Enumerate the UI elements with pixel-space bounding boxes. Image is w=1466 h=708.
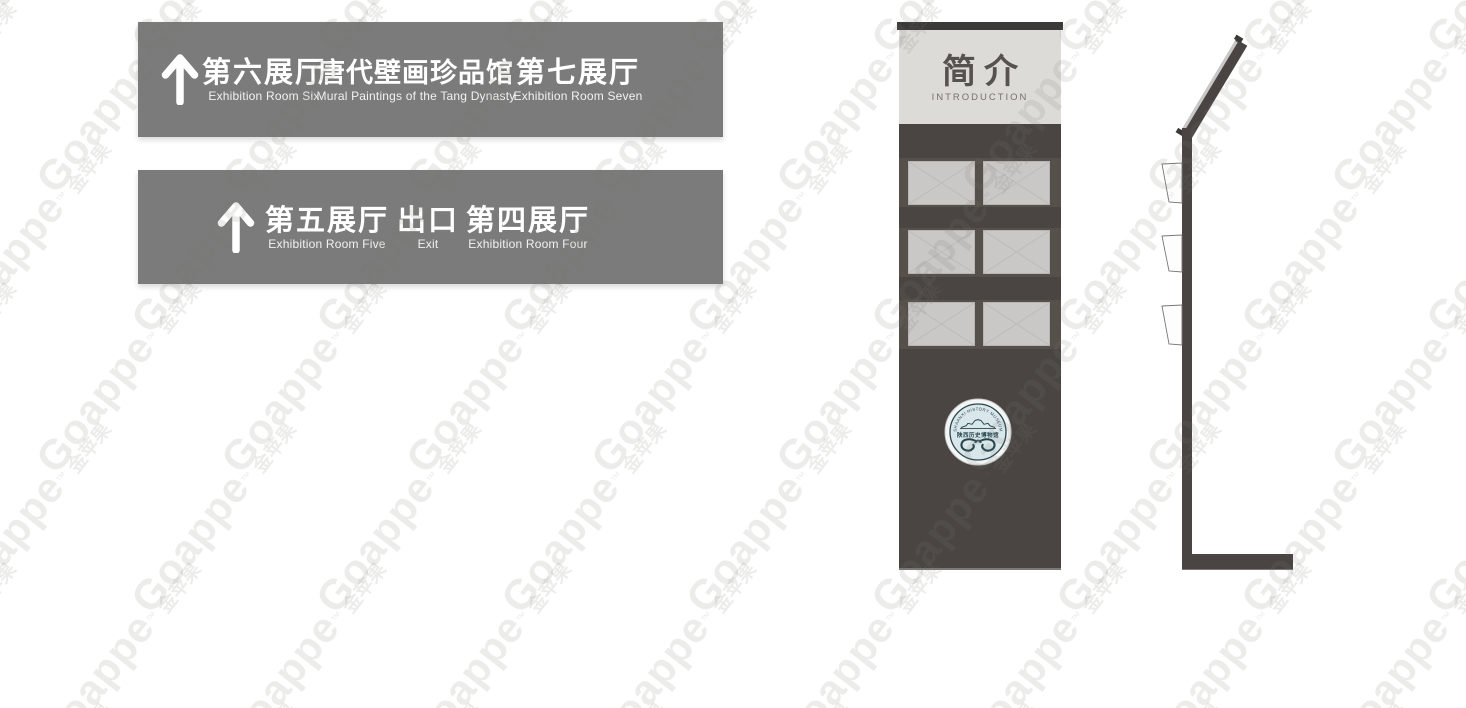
room-four-label-en: Exhibition Room Four [466,238,590,251]
sign-item-room-seven: 第七展厅 Exhibition Room Seven [514,58,643,103]
watermark: Goappe™金苹果 [1417,0,1466,62]
exit-label-cn: 出口 [397,206,459,236]
watermark: Goappe™金苹果 [582,546,765,708]
watermark: Goappe™金苹果 [1047,686,1230,708]
watermark: Goappe™金苹果 [1417,686,1466,708]
up-arrow-icon [160,49,200,105]
room-seven-label-en: Exhibition Room Seven [514,90,643,103]
room-six-label-en: Exhibition Room Six [202,90,326,103]
sign-item-room-five: 第五展厅 Exhibition Room Five [265,206,389,251]
watermark: Goappe™金苹果 [0,0,25,202]
watermark: Goappe™金苹果 [27,266,210,482]
photo-frame [908,161,975,205]
watermark: Goappe™金苹果 [677,686,860,708]
photo-frame [908,230,975,274]
room-four-label-cn: 第四展厅 [466,206,590,236]
side-view-brochure-holders [1158,158,1188,358]
watermark: Goappe™金苹果 [1322,266,1466,482]
totem-body [899,124,1061,570]
sign-panel-bottom: 第五展厅 Exhibition Room Five 出口 Exit 第四展厅 E… [138,170,723,284]
watermark: Goappe™金苹果 [122,686,305,708]
watermark: Goappe™金苹果 [677,406,860,622]
side-view-panel-face [1181,41,1238,133]
watermark: Goappe™金苹果 [27,546,210,708]
side-view-base [1182,554,1293,570]
totem-top-cap [897,22,1063,30]
watermark: Goappe™金苹果 [0,126,120,342]
watermark: Goappe™金苹果 [0,0,120,62]
watermark: Goappe™金苹果 [582,266,765,482]
watermark: Goappe™金苹果 [1232,126,1415,342]
watermark: Goappe™金苹果 [1232,0,1415,62]
sign-item-mural-hall: 唐代壁画珍品馆 Mural Paintings of the Tang Dyna… [317,58,516,103]
watermark: Goappe™金苹果 [492,406,675,622]
room-five-label-cn: 第五展厅 [265,206,389,236]
sign-panel-top: 第六展厅 Exhibition Room Six 唐代壁画珍品馆 Mural P… [138,22,723,137]
photo-frame [908,302,975,346]
mural-hall-label-cn: 唐代壁画珍品馆 [317,58,516,88]
watermark: Goappe™金苹果 [1417,406,1466,622]
logo-name-cn: 陕西历史博物馆 [957,431,999,439]
watermark: Goappe™金苹果 [1047,406,1230,622]
watermark: Goappe™金苹果 [1417,126,1466,342]
watermark: Goappe™金苹果 [0,686,120,708]
watermark: Goappe™金苹果 [307,686,490,708]
sign-item-room-four: 第四展厅 Exhibition Room Four [466,206,590,251]
room-five-label-en: Exhibition Room Five [265,238,389,251]
watermark: Goappe™金苹果 [212,266,395,482]
totem-front-view: 简介 INTRODUCTION SHAANXI HISTORY MUSEUM 陕… [899,22,1061,570]
mural-hall-label-en: Mural Paintings of the Tang Dynasty [317,90,516,103]
watermark: Goappe™金苹果 [492,686,675,708]
watermark: Goappe™金苹果 [397,266,580,482]
watermark: Goappe™金苹果 [212,546,395,708]
photo-frame [983,230,1050,274]
watermark: Goappe™金苹果 [0,546,25,708]
totem-title-en: INTRODUCTION [899,92,1061,103]
watermark: Goappe™金苹果 [397,546,580,708]
room-seven-label-cn: 第七展厅 [514,58,643,88]
watermark: Goappe™金苹果 [0,266,25,482]
watermark: Goappe™金苹果 [1322,0,1466,202]
museum-logo: SHAANXI HISTORY MUSEUM 陕西历史博物馆 [944,398,1012,466]
exit-label-en: Exit [397,238,459,251]
watermark: Goappe™金苹果 [0,406,120,622]
watermark: Goappe™金苹果 [862,686,1045,708]
photo-frame [983,161,1050,205]
sign-item-room-six: 第六展厅 Exhibition Room Six [202,58,326,103]
up-arrow-icon [216,197,256,253]
room-six-label-cn: 第六展厅 [202,58,326,88]
watermark: Goappe™金苹果 [952,546,1135,708]
design-sheet: 第六展厅 Exhibition Room Six 唐代壁画珍品馆 Mural P… [0,0,1466,708]
totem-title-cn: 简介 [899,56,1061,90]
watermark: Goappe™金苹果 [1322,546,1466,708]
watermark: Goappe™金苹果 [122,406,305,622]
watermark: Goappe™金苹果 [767,546,950,708]
watermark: Goappe™金苹果 [1047,0,1230,62]
totem-header: 简介 INTRODUCTION [899,30,1061,124]
watermark: Goappe™金苹果 [1137,546,1320,708]
sign-item-exit: 出口 Exit [397,206,459,251]
watermark: Goappe™金苹果 [1232,406,1415,622]
photo-frame [983,302,1050,346]
watermark: Goappe™金苹果 [1232,686,1415,708]
watermark: Goappe™金苹果 [1047,126,1230,342]
watermark: Goappe™金苹果 [307,406,490,622]
side-view-angled-panel [1180,39,1248,140]
